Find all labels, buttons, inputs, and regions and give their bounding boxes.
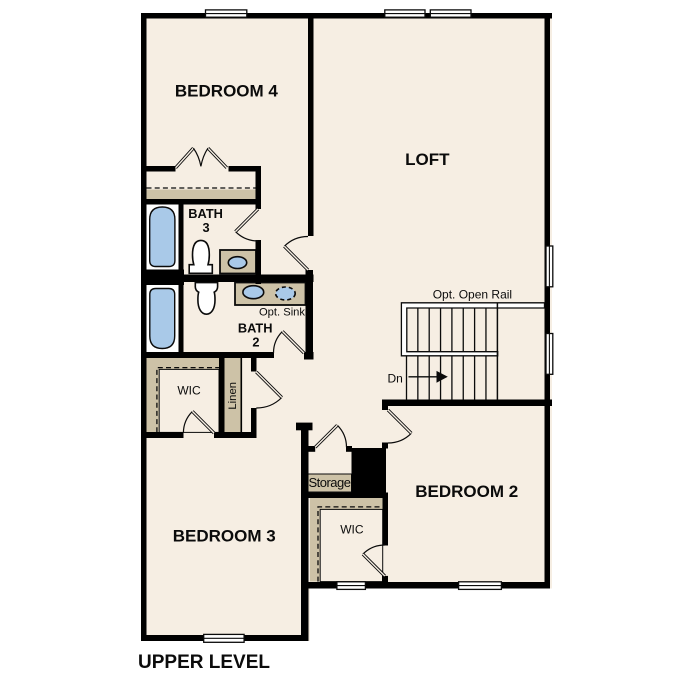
svg-text:BATH: BATH: [188, 206, 223, 221]
svg-text:Linen: Linen: [227, 382, 239, 410]
svg-text:2: 2: [252, 335, 259, 350]
svg-text:Opt. Open Rail: Opt. Open Rail: [433, 287, 512, 301]
svg-text:WIC: WIC: [340, 523, 364, 537]
svg-text:BEDROOM 3: BEDROOM 3: [173, 526, 276, 545]
svg-text:BEDROOM 2: BEDROOM 2: [415, 482, 518, 501]
svg-text:LOFT: LOFT: [405, 150, 450, 169]
svg-text:WIC: WIC: [177, 384, 201, 398]
svg-text:UPPER LEVEL: UPPER LEVEL: [138, 652, 270, 673]
svg-text:3: 3: [202, 220, 209, 235]
svg-text:BATH: BATH: [238, 320, 273, 335]
svg-text:BEDROOM 4: BEDROOM 4: [175, 82, 279, 101]
svg-text:Opt. Sink: Opt. Sink: [259, 306, 305, 318]
svg-text:Dn: Dn: [388, 371, 403, 385]
svg-text:Storage: Storage: [308, 475, 350, 490]
